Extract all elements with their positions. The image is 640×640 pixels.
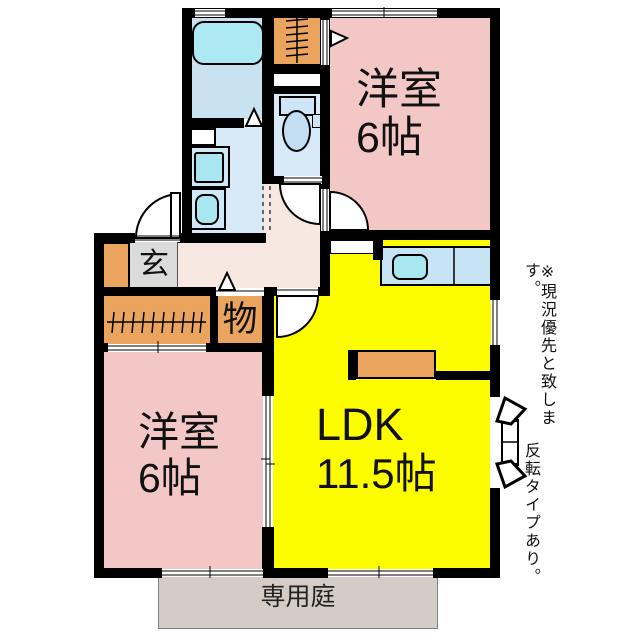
- island-wall-bar: [436, 371, 492, 380]
- island-wall-stub: [348, 350, 356, 380]
- wall-left-main: [94, 233, 104, 578]
- wall-closettop-bottom: [262, 64, 322, 74]
- toilet-door-opening: [284, 176, 322, 184]
- note-line2: 反転タイプあり。: [522, 442, 538, 592]
- storage-door: [216, 288, 264, 296]
- closet-top-door: [321, 20, 329, 65]
- wall-ldk-west-b: [262, 527, 274, 572]
- right-door-opening: [490, 397, 500, 488]
- ldk-door-opening: [277, 288, 318, 296]
- closet-top: [270, 12, 324, 68]
- wall-kitchen-stub: [373, 240, 383, 260]
- window-top-bedroom: [332, 9, 437, 17]
- washbasin-sink: [194, 152, 224, 183]
- bedroomtop-door-opening: [321, 189, 329, 231]
- washing-machine: [195, 194, 219, 225]
- wall-toilet-bottom-stub: [272, 176, 284, 184]
- bedroom-bottom-size: 6帖: [138, 456, 220, 502]
- ldk-size: 11.5帖: [316, 450, 437, 497]
- window-bottom-bedroom: [162, 569, 263, 577]
- floor-plan: 洋室 6帖 洋室 6帖 LDK 11.5帖 玄 物 専用庭 ※現況優先と致します…: [0, 0, 640, 640]
- ldk-label: LDK 11.5帖: [316, 400, 437, 497]
- window-top-bath: [195, 9, 225, 17]
- wall-bath-washroom: [182, 118, 244, 128]
- wall-hall-south-a: [94, 287, 216, 296]
- bedroom-top-name: 洋室: [356, 66, 442, 114]
- hallway-arm: [264, 182, 326, 244]
- toilet-bowl: [282, 110, 311, 152]
- window-bottom-ldk: [328, 569, 433, 577]
- entrance-door-arc: [136, 194, 180, 238]
- bedroom-top-label: 洋室 6帖: [356, 66, 442, 162]
- note-line1: ※現況優先と致します。: [522, 262, 554, 452]
- wall-right-a: [490, 8, 500, 300]
- hallway-main: [176, 240, 326, 292]
- garden-label: 専用庭: [158, 583, 438, 611]
- wall-closetrow-bottom-a: [94, 343, 108, 352]
- closet-bottom-door: [108, 344, 206, 352]
- entrance-door-leaf: [171, 193, 180, 238]
- sliding-door-bedroom-ldk: [263, 396, 273, 527]
- bathtub: [192, 21, 264, 65]
- bedroom-bottom-name: 洋室: [138, 410, 220, 456]
- wall-right-c: [490, 488, 500, 578]
- wall-toilet-top: [272, 86, 322, 94]
- wall-washroom-bottom: [182, 233, 266, 243]
- wall-right-b: [490, 345, 500, 397]
- island-counter: [356, 350, 436, 379]
- kitchen-threshold: [330, 240, 374, 254]
- kitchen-sink: [392, 254, 428, 280]
- wall-bath-right: [262, 8, 274, 184]
- washroom-window: [190, 128, 216, 146]
- wall-hall-right: [320, 240, 330, 296]
- window-right-ldk: [491, 300, 500, 345]
- wall-bottom-a: [94, 568, 162, 578]
- bedroom-bottom-label: 洋室 6帖: [138, 410, 220, 502]
- entrance-opening: [135, 234, 180, 242]
- storage-label: 物: [212, 300, 268, 339]
- ldk-name: LDK: [316, 400, 437, 450]
- bath-door-opening: [244, 119, 262, 127]
- closet-bottom: [98, 294, 212, 348]
- right-outward-door-unit: [497, 398, 525, 487]
- genkan-label: 玄: [130, 248, 178, 282]
- wall-bedroomtop-bottom: [320, 230, 500, 240]
- bedroom-top-size: 6帖: [356, 114, 442, 162]
